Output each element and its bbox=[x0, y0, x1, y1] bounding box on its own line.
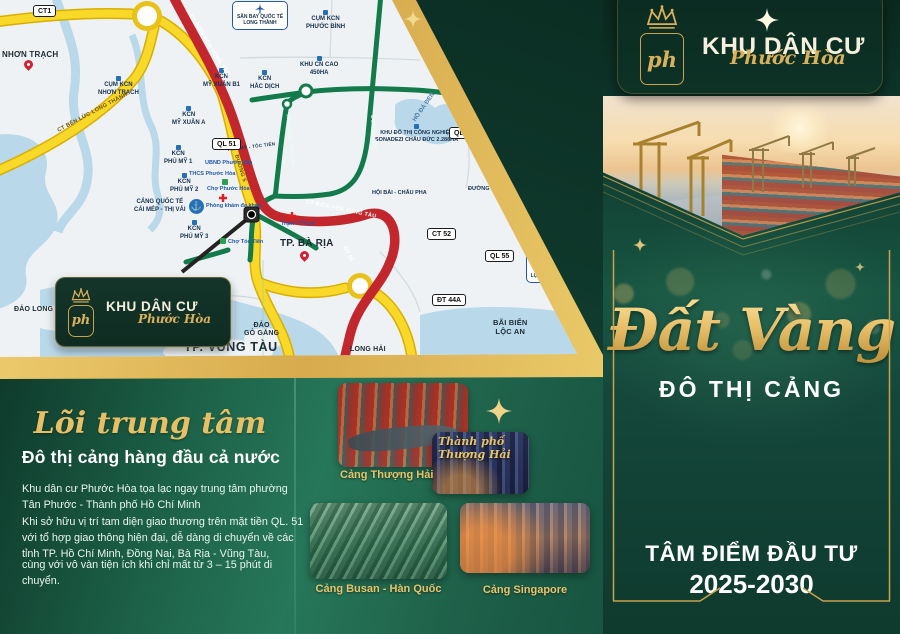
map-city-label: TP. BÀ RỊA bbox=[280, 238, 334, 250]
plane-icon bbox=[255, 4, 265, 14]
map-poi-label: THCS Phước Hòa bbox=[189, 171, 235, 177]
brand-monogram: ph bbox=[68, 305, 94, 337]
brand-emblem: ph bbox=[64, 288, 98, 337]
gold-frame bbox=[603, 0, 900, 634]
market-icon bbox=[220, 238, 226, 244]
sparkle-icon bbox=[755, 8, 779, 32]
airport-badge: SÂN BAY QUỐC TẾ LONG THÀNH bbox=[232, 1, 288, 30]
info-paragraph: cùng với vô vàn tiện ích khi chỉ mất từ … bbox=[22, 557, 306, 589]
map-poi-label: UBND Phước Hòa bbox=[205, 160, 252, 166]
brand-panel: ph KHU DÂN CƯ Phước Hòa bbox=[603, 0, 900, 634]
sparkle-icon bbox=[855, 262, 865, 272]
route-badge: CT1 bbox=[33, 5, 56, 17]
map-poi-label: Trạm Y Tế xã bbox=[281, 221, 315, 227]
sparkle-icon bbox=[486, 398, 512, 424]
photo-caption: Cảng Busan - Hàn Quốc bbox=[310, 583, 447, 595]
map-zone-label: KCN PHÚ MỸ 1 bbox=[164, 145, 192, 167]
route-badge: CT 52 bbox=[427, 228, 456, 240]
brand-script-name: Phước Hòa bbox=[138, 312, 211, 326]
anchor-icon: ⚓ bbox=[189, 199, 204, 214]
map-city-label: LONG HẢI bbox=[350, 346, 386, 354]
brochure-fold-line bbox=[294, 377, 296, 634]
map-zone-label: KHU ĐÔ THỊ CÔNG NGHIỆP SONADEZI CHÂU ĐỨC… bbox=[375, 124, 458, 144]
photo-busan-port bbox=[310, 503, 447, 579]
info-title-main: Đô thị cảng hàng đầu cả nước bbox=[0, 447, 302, 468]
port-caimep-label: CẢNG QUỐC TẾ CÁI MÉP - THỊ VẢI ⚓ bbox=[134, 199, 204, 215]
map-zone-label: KCN HẮC DỊCH bbox=[250, 70, 279, 92]
info-paragraph: Khu dân cư Phước Hòa tọa lạc ngay trung … bbox=[22, 481, 306, 513]
map-city-label: NHƠN TRẠCH bbox=[2, 50, 58, 60]
map-zone-label: CỤM KCN PHƯỚC BÌNH bbox=[306, 10, 345, 32]
crown-icon bbox=[69, 288, 93, 305]
map-zone-label: KCN PHÚ MỸ 3 bbox=[180, 220, 208, 242]
photo-caption: Cảng Thượng Hải bbox=[340, 469, 433, 481]
sparkle-icon bbox=[633, 238, 647, 252]
project-logo-callout: ph KHU DÂN CƯ Phước Hòa bbox=[55, 277, 231, 347]
map-zone-label: KHU CN CAO 450HA bbox=[300, 56, 338, 78]
map-zone-label: HỘI BÀI - CHÂU PHA bbox=[372, 190, 427, 197]
photo-shanghai-city-caption: Thành phố Thượng Hải bbox=[438, 436, 528, 461]
photo-caption: Cảng Singapore bbox=[460, 584, 590, 596]
sparkle-icon bbox=[404, 10, 422, 28]
photo-singapore-port bbox=[460, 503, 590, 573]
route-badge: QL 51 bbox=[212, 138, 241, 150]
info-paragraph: Khi sở hữu vị trí tam diện giao thương t… bbox=[22, 514, 306, 563]
map-city-label: BÃI BIỂN LỘC AN bbox=[493, 318, 528, 336]
map-poi-label: Chợ Phước Hòa bbox=[207, 186, 250, 192]
map-city-label: ĐẢO GÒ GĂNG bbox=[244, 322, 279, 339]
route-badge: ĐT 44A bbox=[432, 294, 466, 306]
route-badge: QL 55 bbox=[485, 250, 514, 262]
info-title-script: Lõi trung tâm bbox=[0, 406, 300, 441]
map-zone-label: KCN MỸ XUÂN A bbox=[172, 106, 205, 128]
market-icon bbox=[222, 179, 228, 185]
map-poi-label: Phòng khám đa khoa bbox=[206, 203, 261, 209]
brochure-page: Lõi trung tâm Đô thị cảng hàng đầu cả nư… bbox=[0, 0, 900, 634]
map-poi-label: Chợ Tóc Tiên bbox=[228, 239, 263, 245]
